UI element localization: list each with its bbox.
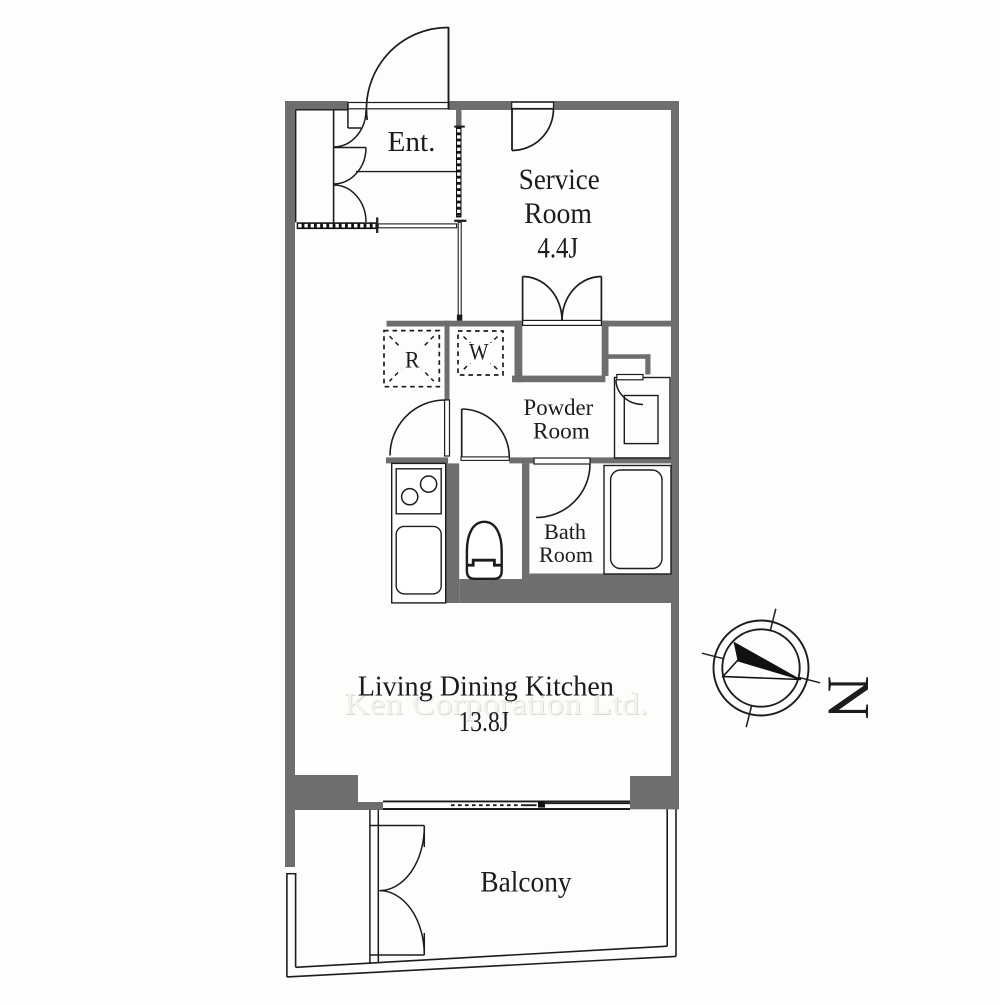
- svg-text:N: N: [816, 676, 882, 720]
- svg-text:Living Dining Kitchen: Living Dining Kitchen: [358, 671, 615, 703]
- svg-text:Room: Room: [539, 542, 593, 567]
- svg-text:Room: Room: [533, 419, 590, 444]
- svg-text:Balcony: Balcony: [480, 867, 571, 899]
- svg-text:13.8J: 13.8J: [459, 706, 509, 738]
- svg-text:Powder: Powder: [524, 395, 594, 420]
- svg-text:W: W: [469, 340, 489, 366]
- svg-text:Room: Room: [524, 197, 592, 230]
- svg-text:Bath: Bath: [544, 519, 586, 544]
- svg-text:Service: Service: [519, 163, 600, 196]
- svg-text:Ent.: Ent.: [388, 127, 436, 158]
- svg-text:4.4J: 4.4J: [537, 232, 578, 265]
- svg-text:R: R: [405, 348, 420, 374]
